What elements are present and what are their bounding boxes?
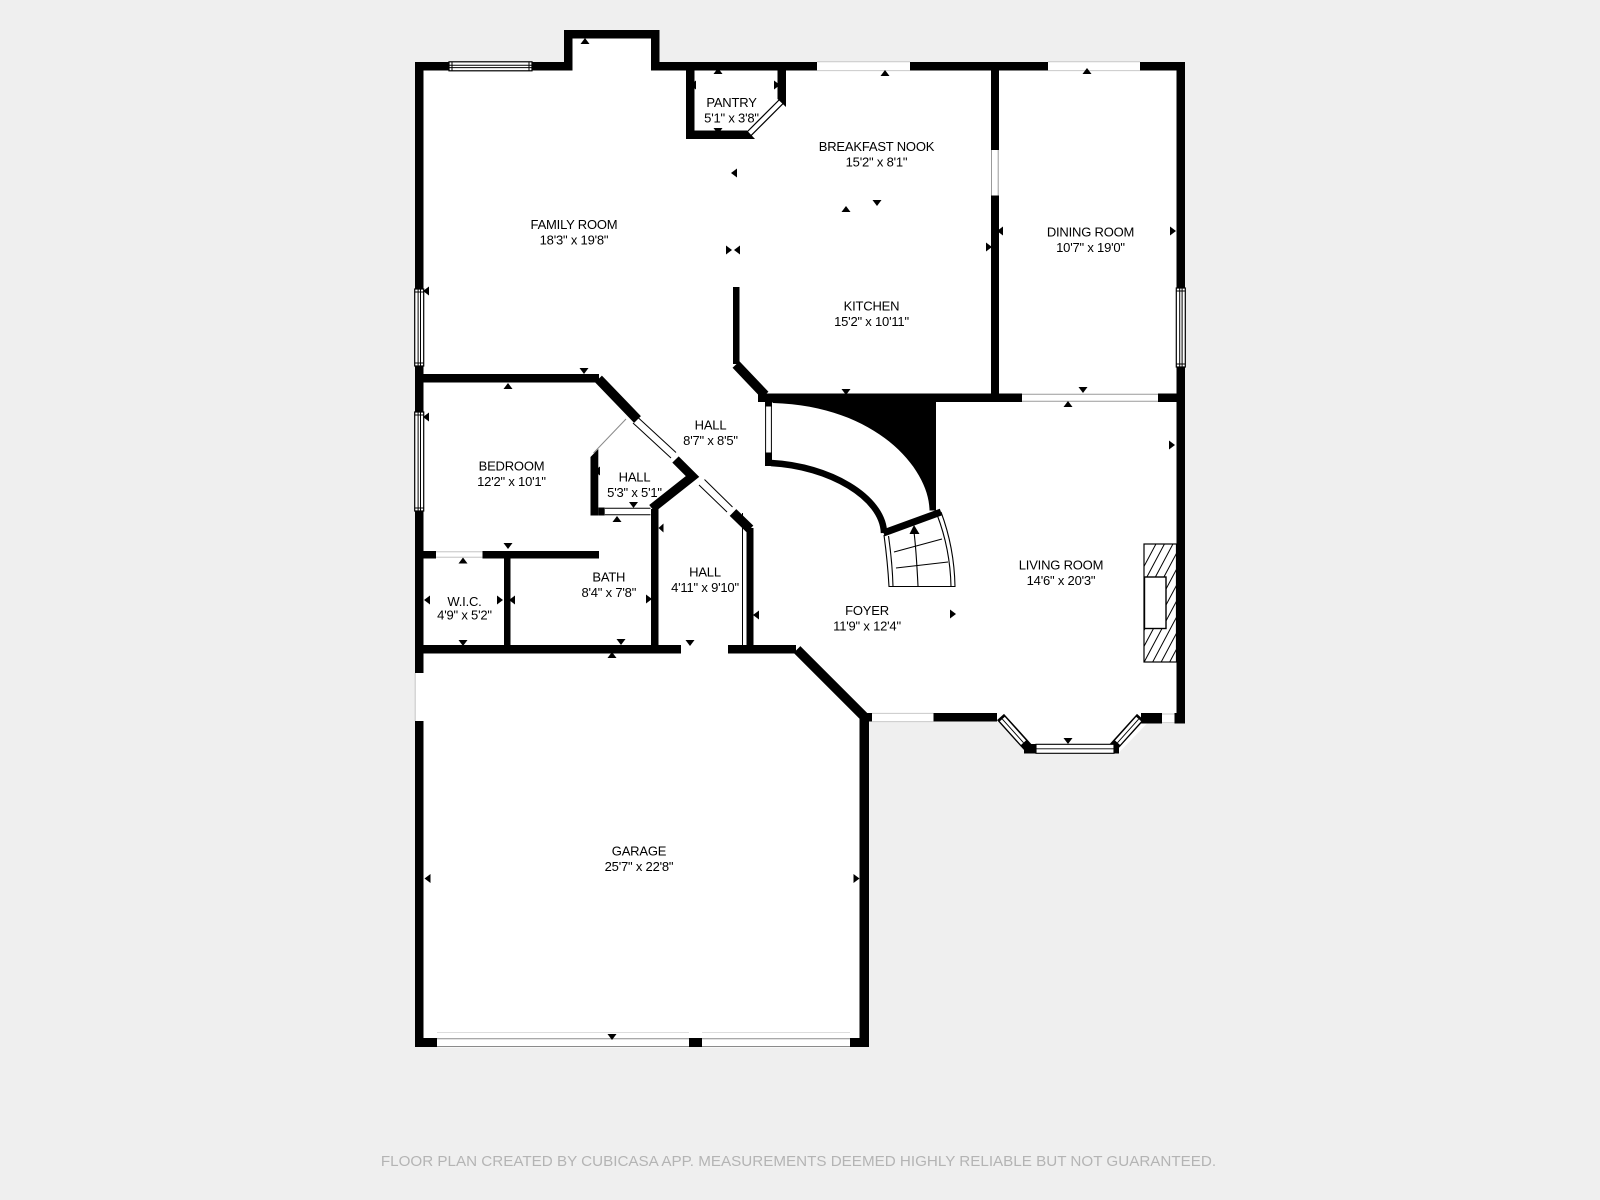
svg-text:18'3" x 19'8": 18'3" x 19'8" [540,232,609,247]
svg-text:12'2" x 10'1": 12'2" x 10'1" [477,474,546,489]
svg-text:HALL: HALL [619,470,651,485]
svg-text:FAMILY ROOM: FAMILY ROOM [531,217,618,232]
svg-text:11'9" x 12'4": 11'9" x 12'4" [833,618,901,633]
svg-text:15'2" x 10'11": 15'2" x 10'11" [834,314,909,329]
svg-text:PANTRY: PANTRY [706,95,757,110]
svg-text:FLOOR PLAN CREATED BY CUBICASA: FLOOR PLAN CREATED BY CUBICASA APP. MEAS… [381,1153,1216,1170]
svg-text:10'7" x 19'0": 10'7" x 19'0" [1056,240,1125,255]
svg-text:BEDROOM: BEDROOM [479,459,545,474]
svg-text:5'3" x 5'1": 5'3" x 5'1" [607,485,662,500]
svg-text:LIVING ROOM: LIVING ROOM [1019,558,1103,573]
svg-text:HALL: HALL [689,565,721,580]
svg-text:KITCHEN: KITCHEN [844,299,900,314]
svg-text:4'9" x 5'2": 4'9" x 5'2" [437,608,492,623]
svg-text:8'7" x 8'5": 8'7" x 8'5" [683,433,738,448]
svg-text:BREAKFAST NOOK: BREAKFAST NOOK [819,139,935,154]
svg-text:FOYER: FOYER [845,603,889,618]
svg-text:BATH: BATH [592,570,625,585]
svg-text:DINING ROOM: DINING ROOM [1047,225,1134,240]
svg-text:HALL: HALL [695,418,727,433]
svg-text:GARAGE: GARAGE [612,844,667,859]
svg-text:15'2" x 8'1": 15'2" x 8'1" [846,154,908,169]
svg-text:4'11" x 9'10": 4'11" x 9'10" [671,580,739,595]
svg-text:25'7" x 22'8": 25'7" x 22'8" [605,859,674,874]
svg-text:14'6" x 20'3": 14'6" x 20'3" [1027,573,1096,588]
svg-text:8'4" x 7'8": 8'4" x 7'8" [581,585,636,600]
svg-text:5'1" x 3'8": 5'1" x 3'8" [704,110,759,125]
